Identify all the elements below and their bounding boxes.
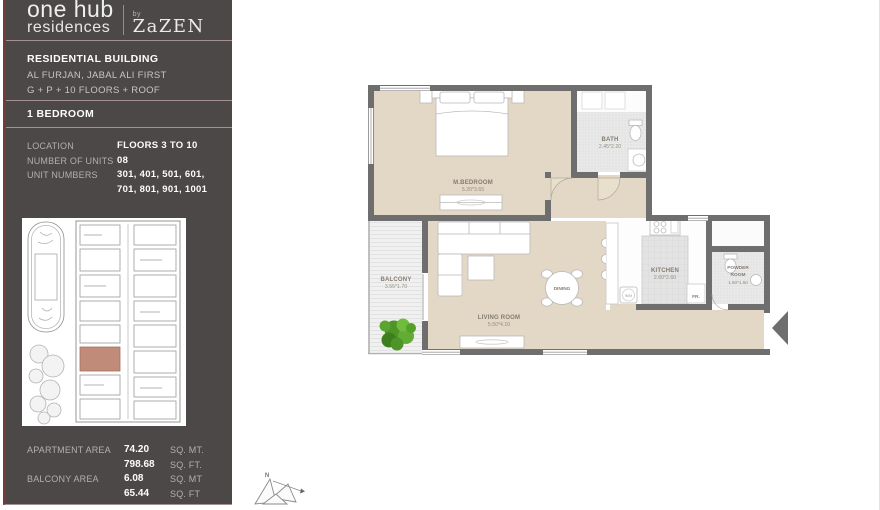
compass-north-label: N [265,473,269,479]
room-label-powder1: POWDER [727,265,749,271]
room-dim-bath: 2.45*2.20 [599,144,621,150]
location-value: FLOORS 3 TO 10 [117,139,198,154]
room-label-mbedroom: M.BEDROOM [453,180,493,186]
unit-numbers-line2: 701, 801, 901, 1001 [117,183,207,198]
highlighted-unit [80,347,120,371]
units-label: NUMBER OF UNITS [27,154,117,169]
building-address: AL FURJAN, JABAL ALI FIRST [27,70,232,81]
building-info: RESIDENTIAL BUILDING AL FURJAN, JABAL AL… [6,41,232,101]
entrance-arrow-icon [772,311,788,345]
sidebar: one hub residences by ZaZEN RESIDENTIAL … [3,0,232,505]
room-label-bath: BATH [601,137,618,143]
floor-plan-drawing: M.BEDROOM 5.20*3.65 BATH 2.45*2.20 BALCO… [360,78,796,370]
unit-numbers-label: UNIT NUMBERS [27,168,117,183]
unit-type: 1 BEDROOM [6,101,232,128]
apartment-sqmt-value: 74.20 [124,443,170,458]
brand-developer: ZaZEN [133,18,205,35]
brand-logo: one hub residences by ZaZEN [6,0,232,41]
brand-line1: one hub [27,0,114,20]
fridge-label: FR. [692,294,700,300]
balcony-sqft-value: 65.44 [124,487,170,502]
room-label-kitchen: KITCHEN [651,268,679,274]
balcony-area-row: BALCONY AREA 6.08 SQ. MT [27,472,227,487]
balcony-sqmt-unit: SQ. MT [170,472,202,487]
apartment-area-label: APARTMENT AREA [27,443,124,458]
dresser [440,195,502,210]
balcony-area-label: BALCONY AREA [27,472,124,487]
building-title: RESIDENTIAL BUILDING [27,53,232,65]
apartment-area-row: APARTMENT AREA 74.20 SQ. MT. [27,443,227,458]
brand-line2: residences [27,20,114,35]
room-label-living: LIVING ROOM [478,315,521,321]
key-plan-graphic [22,218,186,426]
brand-name: one hub residences [27,0,114,40]
units-row: NUMBER OF UNITS 08 [27,154,232,169]
brochure-page: one hub residences by ZaZEN RESIDENTIAL … [0,0,880,510]
compass: N [243,468,309,510]
coffee-table [468,256,494,280]
balcony-area-row2: 65.44 SQ. FT [27,487,227,502]
unit-numbers-row2: 701, 801, 901, 1001 [27,183,232,198]
room-dim-kitchen: 2.60*2.60 [654,275,676,281]
apartment-sqmt-unit: SQ. MT. [170,443,204,458]
unit-numbers-row: UNIT NUMBERS 301, 401, 501, 601, [27,168,232,183]
room-label-powder2: ROOM [731,272,746,278]
balcony-sqft-unit: SQ. FT [170,487,200,502]
room-dim-balcony: 3.55*1.70 [385,284,407,290]
building-floors: G + P + 10 FLOORS + ROOF [27,85,232,96]
apartment-area-row2: 798.68 SQ. FT. [27,458,227,473]
balcony-sqmt-value: 6.08 [124,472,170,487]
room-dim-living: 5.50*4.10 [488,322,510,328]
location-row: LOCATION FLOORS 3 TO 10 [27,139,232,154]
bed [420,90,524,156]
brand-developer-block: by ZaZEN [133,11,205,35]
north-arrow-icon: N [243,468,309,510]
room-label-balcony: BALCONY [380,277,411,283]
key-plan [22,218,186,426]
unit-numbers-line1: 301, 401, 501, 601, [117,168,205,183]
unit-details: LOCATION FLOORS 3 TO 10 NUMBER OF UNITS … [6,128,232,197]
room-dim-mbedroom: 5.20*3.65 [462,187,484,193]
room-label-dining: DINING [554,286,571,292]
apartment-sqft-unit: SQ. FT. [170,458,202,473]
floor-plan: M.BEDROOM 5.20*3.65 BATH 2.45*2.20 BALCO… [360,78,796,370]
area-table: APARTMENT AREA 74.20 SQ. MT. 798.68 SQ. … [27,443,227,501]
logo-divider [123,5,124,35]
location-label: LOCATION [27,139,117,154]
units-value: 08 [117,154,128,169]
tv-console [460,336,524,348]
floor-areas [370,91,764,352]
washer-label: W/M [625,294,632,298]
room-dim-powder: 1.60*1.50 [728,280,748,285]
apartment-sqft-value: 798.68 [124,458,170,473]
